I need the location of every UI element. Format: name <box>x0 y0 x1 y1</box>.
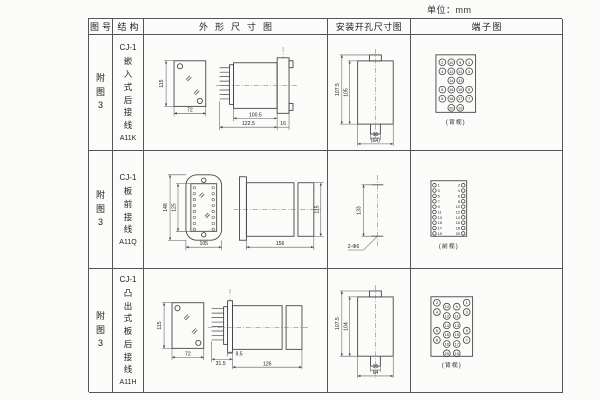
outline-drawing-flush: 115 72 100.5 122.5 16 <box>144 35 328 151</box>
model-code: A11H <box>120 379 137 386</box>
terminal-number: 3 <box>466 311 468 315</box>
terminal-number: 17 <box>455 342 459 346</box>
terminal-svg: 1234567891011121314151617181920 (前视) <box>411 151 562 268</box>
pin-base <box>224 307 228 345</box>
terminal-circle <box>461 210 465 214</box>
figure-no-cell: 附图3 <box>89 151 113 269</box>
terminal-grid: 2109141211314136161558181772019 <box>434 299 471 356</box>
terminal-number: 17 <box>438 227 442 231</box>
terminal-number: 12 <box>445 315 449 319</box>
terminal-circle <box>461 189 465 193</box>
header-label: 结构 <box>114 20 141 33</box>
dim-inner-height: 105 <box>343 88 349 97</box>
extension-lines <box>340 55 393 146</box>
terminal-number: 10 <box>445 305 449 309</box>
terminal-number: 7 <box>468 97 470 101</box>
front-view-body <box>172 303 204 349</box>
terminal-number: 11 <box>438 210 442 214</box>
terminal-number: 1 <box>438 184 440 188</box>
dim-body-depth: 126 <box>263 362 272 368</box>
terminal-number: 15 <box>458 88 462 92</box>
terminal-number: 14 <box>445 324 450 328</box>
outline-svg: 115 72 100.5 122.5 16 <box>144 35 327 150</box>
column-header-outline-drawing: 外形尺寸图 <box>144 19 328 35</box>
extension-lines <box>246 183 323 250</box>
flange-tab <box>289 103 293 110</box>
terminal-number: 1 <box>466 301 468 305</box>
terminal-circle <box>461 216 465 220</box>
terminal-number: 14 <box>449 79 454 83</box>
terminal-number: 16 <box>445 333 449 337</box>
terminal-circle <box>433 232 437 236</box>
terminal-circle <box>433 194 437 198</box>
figure-no: 附图3 <box>95 310 106 351</box>
dim-outer-height: 107.5 <box>335 83 341 96</box>
terminal-number: 16 <box>456 221 460 225</box>
relay-series: CJ-1 <box>120 43 137 52</box>
front-view-body <box>191 184 217 232</box>
mounting-drawing-front-wired: 133 2-Φ6 <box>328 151 411 269</box>
relay-series: CJ-1 <box>120 173 137 182</box>
extension-lines <box>162 303 204 361</box>
figure-no-cell: 附图3 <box>89 269 113 393</box>
terminal-number: 12 <box>456 210 460 214</box>
dim-outer-height: 148 <box>163 203 169 212</box>
outline-svg: 148 125 105 156 115 <box>144 151 327 268</box>
mount-type: 嵌入式后接线 <box>123 55 134 132</box>
structure-cell: CJ-1 凸出式板后接线 A11H <box>113 269 144 393</box>
terminal-number: 5 <box>468 88 470 92</box>
terminal-circle <box>461 232 465 236</box>
dim-front-height: 115 <box>159 79 165 87</box>
terminal-number: 7 <box>466 339 468 343</box>
column-header-mounting-holes: 安装开孔尺寸图 <box>328 19 411 35</box>
dim-side-height: 115 <box>314 205 320 213</box>
mount-hole-icon <box>196 340 201 345</box>
outline-drawing-projecting: 115 72 9.5 31.5 126 <box>144 269 328 393</box>
mount-hole-icon <box>202 233 206 237</box>
terminal-number: 13 <box>458 79 462 83</box>
terminal-number: 6 <box>458 194 460 198</box>
column-header-structure: 结构 <box>113 19 144 35</box>
terminal-svg: 2109141211314136161558181772019 (背视) <box>411 269 562 392</box>
mounting-drawing-flush: 107.5 105 16 (64) <box>328 35 411 151</box>
manual-page: { "unit_label": "单位：mm", "table": { "hea… <box>0 0 600 400</box>
spec-table: 图号 结构 外形尺寸图 安装开孔尺寸图 端子图 附图3 CJ-1 嵌入式后接线 … <box>88 18 562 392</box>
column-header-terminal-diagram: 端子图 <box>411 19 563 35</box>
model-code: A11K <box>120 135 137 142</box>
pin-base <box>230 65 234 105</box>
outline-svg: 115 72 9.5 31.5 126 <box>144 269 327 392</box>
terminal-dots-icon <box>193 186 214 230</box>
dim-front-height: 115 <box>157 321 163 329</box>
view-label: (前视) <box>439 242 459 250</box>
terminal-number: 5 <box>438 194 440 198</box>
mount-hole-icon <box>202 178 206 182</box>
dim-front-width: 72 <box>187 107 193 113</box>
dim-opening-width: 64 <box>373 370 379 376</box>
dim-front-width: 72 <box>185 351 191 357</box>
terminal-number: 11 <box>458 70 462 74</box>
dim-depth: 156 <box>276 241 285 247</box>
screw-mark-icon <box>199 193 209 218</box>
flange-tab <box>289 61 293 68</box>
terminal-number: 15 <box>438 221 442 225</box>
front-view-body <box>174 61 206 107</box>
terminal-number: 2 <box>436 301 438 305</box>
structure-cell: CJ-1 板前接线 A11Q <box>113 151 144 269</box>
view-label: (背视) <box>442 361 462 369</box>
extension-lines <box>164 61 206 117</box>
terminal-number: 20 <box>449 106 453 110</box>
terminal-number: 5 <box>466 329 468 333</box>
terminal-number: 15 <box>455 333 459 337</box>
dim-plate-depth: 9.5 <box>236 351 243 357</box>
dim-inner-height: 125 <box>172 203 178 212</box>
terminal-circle <box>433 189 437 193</box>
terminal-number: 14 <box>456 216 461 220</box>
view-label: (背视) <box>446 118 466 126</box>
structure-cell: CJ-1 嵌入式后接线 A11K <box>113 35 144 151</box>
terminal-number: 10 <box>456 205 460 209</box>
terminal-number: 3 <box>438 189 440 193</box>
dim-width: 105 <box>199 241 208 247</box>
terminal-circle <box>433 199 437 203</box>
terminal-number: 7 <box>438 200 440 204</box>
terminal-number: 2 <box>441 61 443 65</box>
terminal-circle <box>433 216 437 220</box>
screw-mark-icon <box>186 76 199 95</box>
terminal-pairs: 1234567891011121314151617181920 <box>433 183 465 235</box>
terminal-circle <box>461 199 465 203</box>
terminal-diagram-flush: 2109141211314136161558181772019 (背视) <box>411 35 563 151</box>
terminal-number: 1 <box>468 61 470 65</box>
terminal-number: 18 <box>445 342 449 346</box>
terminal-circle <box>433 221 437 225</box>
terminal-number: 19 <box>458 106 462 110</box>
mounting-svg: 133 2-Φ6 <box>328 151 410 268</box>
terminal-number: 8 <box>441 97 443 101</box>
dim-total-depth: 122.5 <box>242 121 255 127</box>
outline-drawing-front-wired: 148 125 105 156 115 <box>144 151 328 269</box>
mounting-svg: 107.5 104 16 64 <box>328 269 410 392</box>
terminal-number: 6 <box>436 329 438 333</box>
header-label: 安装开孔尺寸图 <box>336 20 403 33</box>
terminal-number: 8 <box>458 200 460 204</box>
mount-type: 板前接线 <box>123 185 134 236</box>
terminal-circle <box>433 226 437 230</box>
terminal-number: 13 <box>455 324 459 328</box>
header-label: 端子图 <box>470 20 503 33</box>
terminal-circle <box>461 221 465 225</box>
terminal-number: 6 <box>441 88 443 92</box>
terminal-circle <box>461 226 465 230</box>
figure-no: 附图3 <box>95 72 106 113</box>
terminal-circle <box>461 205 465 209</box>
mounting-drawing-projecting: 107.5 104 16 64 <box>328 269 411 393</box>
terminal-number: 16 <box>449 88 453 92</box>
mounting-svg: 107.5 105 16 (64) <box>328 35 410 150</box>
socket-plate <box>228 301 233 353</box>
terminal-number: 2 <box>458 184 460 188</box>
model-code: A11Q <box>119 239 136 246</box>
terminal-grid: 2109141211314136161558181772019 <box>439 59 473 111</box>
terminal-circle <box>433 205 437 209</box>
hole-note: 2-Φ6 <box>348 244 360 250</box>
terminal-number: 20 <box>445 352 449 356</box>
extension-lines <box>340 291 393 378</box>
terminal-number: 10 <box>449 61 453 65</box>
header-label: 外形尺寸图 <box>192 20 279 33</box>
terminal-number: 17 <box>458 97 462 101</box>
terminal-number: 3 <box>468 70 470 74</box>
extension-lines <box>362 185 372 236</box>
terminal-diagram-projecting: 2109141211314136161558181772019 (背视) <box>411 269 563 393</box>
terminal-number: 19 <box>455 352 459 356</box>
mount-type: 凸出式板后接线 <box>123 287 134 376</box>
dim-pin-depth: 31.5 <box>216 361 226 367</box>
dim-opening-width: (64) <box>371 138 380 144</box>
terminal-circle <box>433 210 437 214</box>
terminal-number: 11 <box>455 315 459 319</box>
terminal-number: 9 <box>459 61 461 65</box>
terminal-diagram-front-wired: 1234567891011121314151617181920 (前视) <box>411 151 563 269</box>
terminal-pins-icon <box>212 309 224 340</box>
dim-hole-spacing: 133 <box>357 206 363 215</box>
terminal-pins-icon <box>220 68 230 99</box>
unit-label: 单位：mm <box>427 3 472 16</box>
terminal-number: 12 <box>449 70 453 74</box>
dim-flange-depth: 16 <box>280 121 286 127</box>
figure-no: 附图3 <box>95 189 106 230</box>
terminal-circle <box>461 183 465 187</box>
header-label: 图号 <box>89 20 113 33</box>
terminal-number: 9 <box>438 205 440 209</box>
terminal-number: 19 <box>438 232 442 236</box>
column-header-figure-no: 图号 <box>89 19 113 35</box>
dim-body-depth: 100.5 <box>249 112 262 118</box>
terminal-number: 4 <box>436 311 439 315</box>
terminal-number: 13 <box>438 216 442 220</box>
terminal-number: 9 <box>456 305 458 309</box>
terminal-number: 8 <box>436 339 438 343</box>
mount-hole-icon <box>177 64 182 69</box>
terminal-svg: 2109141211314136161558181772019 (背视) <box>411 35 562 150</box>
mount-hole-icon <box>197 98 202 103</box>
terminal-number: 4 <box>458 189 461 193</box>
terminal-number: 18 <box>456 227 460 231</box>
terminal-number: 18 <box>449 97 453 101</box>
terminal-number: 4 <box>441 70 444 74</box>
dim-outer-height: 107.5 <box>335 317 341 330</box>
terminal-circle <box>461 194 465 198</box>
screw-mark-icon <box>184 315 197 334</box>
mount-hole-icon <box>175 306 180 311</box>
terminal-circle <box>433 183 437 187</box>
relay-series: CJ-1 <box>120 275 137 284</box>
figure-no-cell: 附图3 <box>89 35 113 151</box>
front-flange <box>239 177 246 240</box>
terminal-number: 20 <box>456 232 460 236</box>
dim-inner-height: 104 <box>343 322 349 331</box>
